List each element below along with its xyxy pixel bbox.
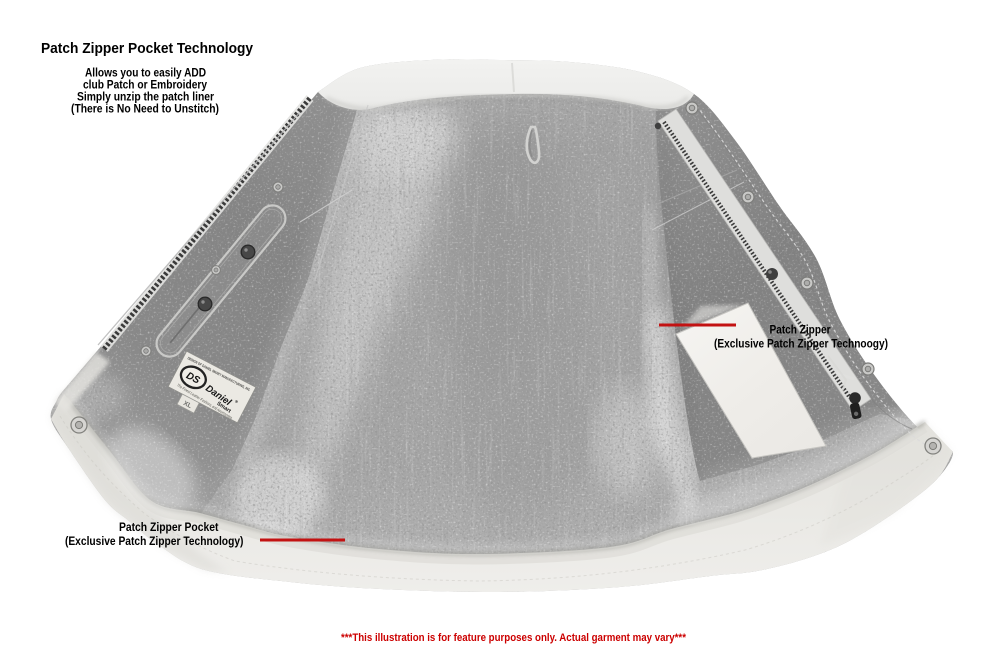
svg-text:Patch Zipper: Patch Zipper xyxy=(770,325,831,337)
svg-text:(Exclusive Patch Zipper Techno: (Exclusive Patch Zipper Technoogy) xyxy=(714,339,888,351)
svg-text:Simply unzip the patch liner: Simply unzip the patch liner xyxy=(77,91,214,103)
svg-text:(There is No Need to Unstitch): (There is No Need to Unstitch) xyxy=(71,103,219,115)
svg-text:Patch Zipper Pocket: Patch Zipper Pocket xyxy=(119,522,219,534)
svg-text:club Patch or Embroidery: club Patch or Embroidery xyxy=(83,79,208,91)
svg-text:Patch Zipper Pocket Technology: Patch Zipper Pocket Technology xyxy=(41,40,254,57)
svg-text:Allows you to easily ADD: Allows you to easily ADD xyxy=(85,68,206,80)
svg-text:***This illustration is for fe: ***This illustration is for feature purp… xyxy=(341,632,687,644)
svg-text:(Exclusive Patch Zipper Techno: (Exclusive Patch Zipper Technology) xyxy=(65,536,244,548)
